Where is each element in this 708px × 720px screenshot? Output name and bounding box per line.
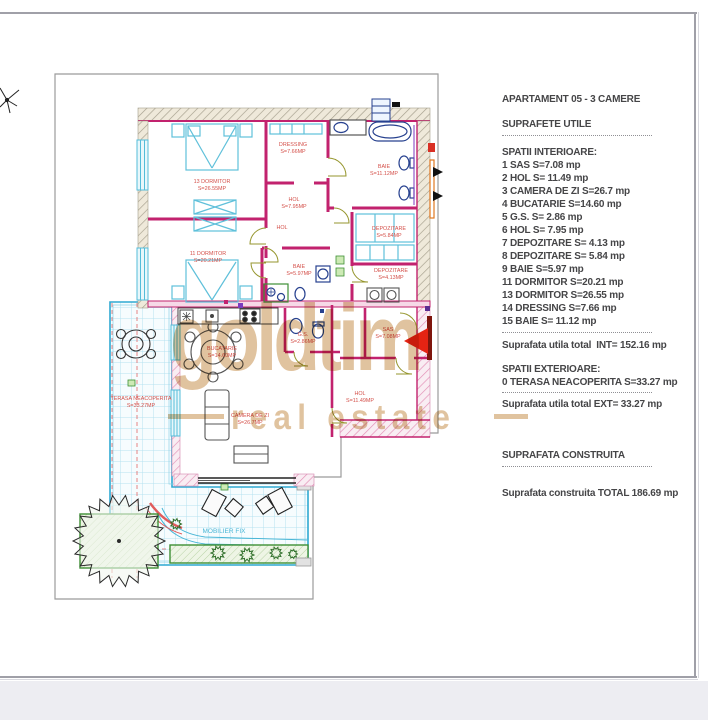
panel-line: APARTAMENT 05 - 3 CAMERE bbox=[502, 93, 667, 106]
room-label: TERASA NEACOPERITA bbox=[110, 396, 171, 402]
panel-separator bbox=[502, 466, 652, 469]
room-label: MOBILIER FIX bbox=[203, 528, 247, 535]
room-label: S=2.86MP bbox=[290, 339, 316, 345]
panel-line: 4 BUCATARIE S=14.60 mp bbox=[502, 198, 667, 211]
panel-line: SUPRAFETE UTILE bbox=[502, 118, 667, 131]
room-label: S=7.08MP bbox=[375, 334, 401, 340]
panel-line: 8 DEPOZITARE S= 5.84 mp bbox=[502, 250, 667, 263]
panel-line: 14 DRESSING S=7.66 mp bbox=[502, 302, 667, 315]
room-label: S=7.66MP bbox=[280, 149, 306, 155]
room-label: SAS bbox=[383, 327, 394, 333]
panel-separator bbox=[502, 392, 652, 395]
panel-line: 0 TERASA NEACOPERITA S=33.27 mp bbox=[502, 376, 667, 389]
panel-separator bbox=[502, 332, 652, 335]
panel-line: Suprafata utila total EXT= 33.27 mp bbox=[502, 398, 667, 411]
room-label: S=26.55MP bbox=[198, 186, 227, 192]
panel-line: 3 CAMERA DE ZI S=26.7 mp bbox=[502, 185, 667, 198]
panel-line: 15 BAIE S= 11.12 mp bbox=[502, 315, 667, 328]
room-label: S=26.7MP bbox=[237, 420, 263, 426]
panel-line: 5 G.S. S= 2.86 mp bbox=[502, 211, 667, 224]
room-label: S=7.95MP bbox=[281, 204, 307, 210]
north-arrow-icon bbox=[0, 88, 19, 113]
room-label: S=20.21MP bbox=[194, 258, 223, 264]
panel-line: 2 HOL S= 11.49 mp bbox=[502, 172, 667, 185]
room-label: DEPOZITARE bbox=[374, 268, 408, 274]
room-label: BAIE bbox=[378, 164, 391, 170]
panel-separator bbox=[502, 135, 652, 138]
panel-line: SPATII EXTERIOARE: bbox=[502, 363, 667, 376]
room-label: S=33.27MP bbox=[127, 403, 156, 409]
panel-line: Suprafata construita TOTAL 186.69 mp bbox=[502, 487, 667, 500]
room-label: DRESSING bbox=[279, 142, 307, 148]
room-label: BUCATARIE bbox=[207, 346, 237, 352]
page: { "panel": { "lines": [ {"type":"text","… bbox=[0, 0, 708, 720]
panel-line: 11 DORMITOR S=20.21 mp bbox=[502, 276, 667, 289]
room-label: S=11.49MP bbox=[346, 398, 374, 404]
room-label: BAIE bbox=[293, 264, 306, 270]
room-label: DEPOZITARE bbox=[372, 226, 406, 232]
room-label: S=5.84MP bbox=[376, 233, 402, 239]
panel-line: 1 SAS S=7.08 mp bbox=[502, 159, 667, 172]
room-label: S=4.13MP bbox=[378, 275, 404, 281]
panel-line: 9 BAIE S=5.97 mp bbox=[502, 263, 667, 276]
room-label: HOL bbox=[354, 391, 365, 397]
panel-line: 7 DEPOZITARE S= 4.13 mp bbox=[502, 237, 667, 250]
room-label: 11 DORMITOR bbox=[190, 251, 226, 257]
room-label: S=5.97MP bbox=[286, 271, 312, 277]
room-label: 13 DORMITOR bbox=[194, 179, 231, 185]
room-label: HOL bbox=[276, 225, 287, 231]
room-label: S=14.60MP bbox=[208, 353, 237, 359]
panel-line: Suprafata utila total INT= 152.16 mp bbox=[502, 339, 667, 352]
room-label: HOL bbox=[288, 197, 299, 203]
panel-line: 6 HOL S= 7.95 mp bbox=[502, 224, 667, 237]
area-measurements-panel: APARTAMENT 05 - 3 CAMERESUPRAFETE UTILES… bbox=[502, 93, 667, 500]
panel-line: SUPRAFATA CONSTRUITA bbox=[502, 449, 667, 462]
panel-line: SPATII INTERIOARE: bbox=[502, 146, 667, 159]
room-label: CAMERA DE ZI bbox=[231, 413, 269, 419]
panel-line: 13 DORMITOR S=26.55 mp bbox=[502, 289, 667, 302]
room-label: G.S. bbox=[298, 332, 309, 338]
room-label: S=11.12MP bbox=[370, 171, 398, 177]
